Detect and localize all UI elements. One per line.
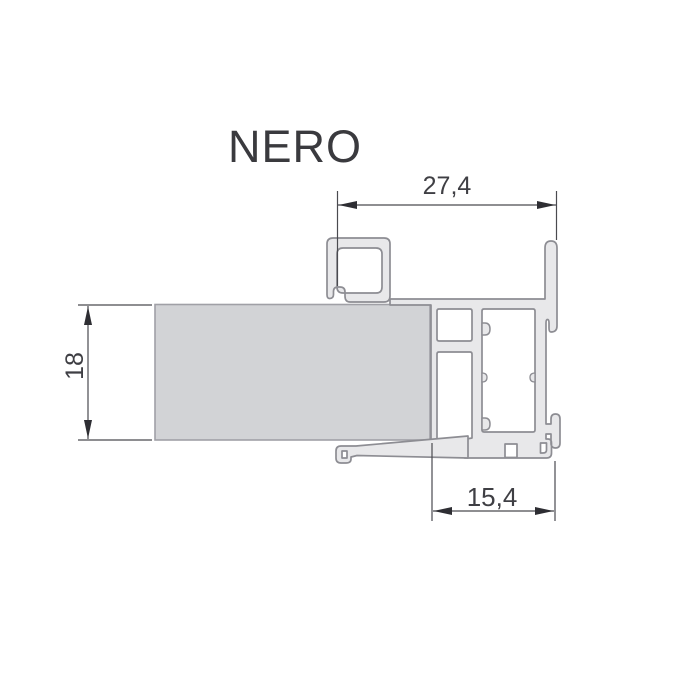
technical-drawing-page: NERO 27,4 18 15,4 — [0, 0, 700, 700]
dimension-label-top-width: 27,4 — [407, 173, 487, 201]
arrowhead-left — [339, 201, 358, 209]
arrowhead-right — [537, 201, 556, 209]
screw-guide-bump-left — [482, 373, 487, 382]
profile-cross-section-drawing — [0, 0, 700, 700]
screw-guide-bump-right — [530, 373, 535, 382]
arrowhead-left — [434, 507, 453, 515]
glass-panel — [155, 305, 430, 441]
square-tube-chamber — [327, 238, 390, 302]
arrowhead-top — [84, 307, 92, 326]
drawing-title: NERO — [175, 122, 415, 172]
dimension-label-bottom-width: 15,4 — [452, 483, 532, 512]
retention-nub-top — [482, 323, 490, 335]
retention-nub-bottom — [482, 418, 490, 430]
arrowhead-right — [535, 507, 554, 515]
dimension-label-left-height: 18 — [62, 336, 90, 396]
arrowhead-bottom — [84, 420, 92, 439]
